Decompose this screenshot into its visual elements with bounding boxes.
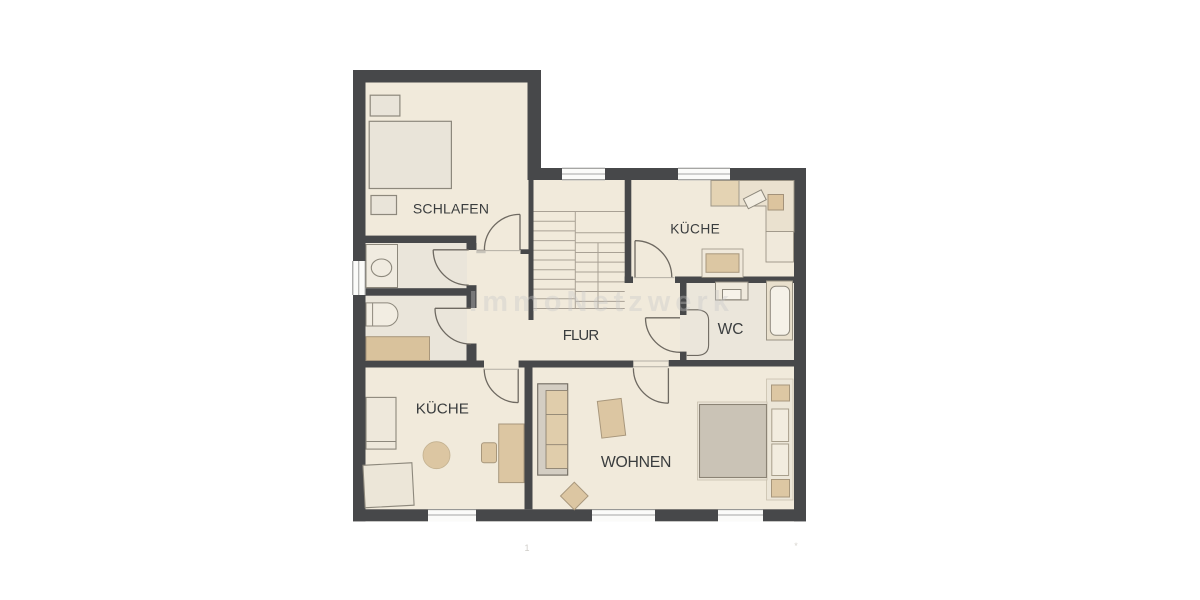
svg-text:KÜCHE: KÜCHE	[670, 222, 720, 237]
svg-text:KÜCHE: KÜCHE	[416, 400, 469, 418]
svg-text:WC: WC	[718, 321, 744, 338]
svg-text:*: *	[794, 541, 798, 551]
svg-text:FLUR: FLUR	[563, 327, 600, 344]
svg-text:1: 1	[524, 543, 529, 553]
svg-text:SCHLAFEN: SCHLAFEN	[413, 201, 489, 217]
svg-text:WOHNEN: WOHNEN	[601, 454, 671, 471]
svg-text:ImmoNetzwerk: ImmoNetzwerk	[469, 286, 734, 318]
